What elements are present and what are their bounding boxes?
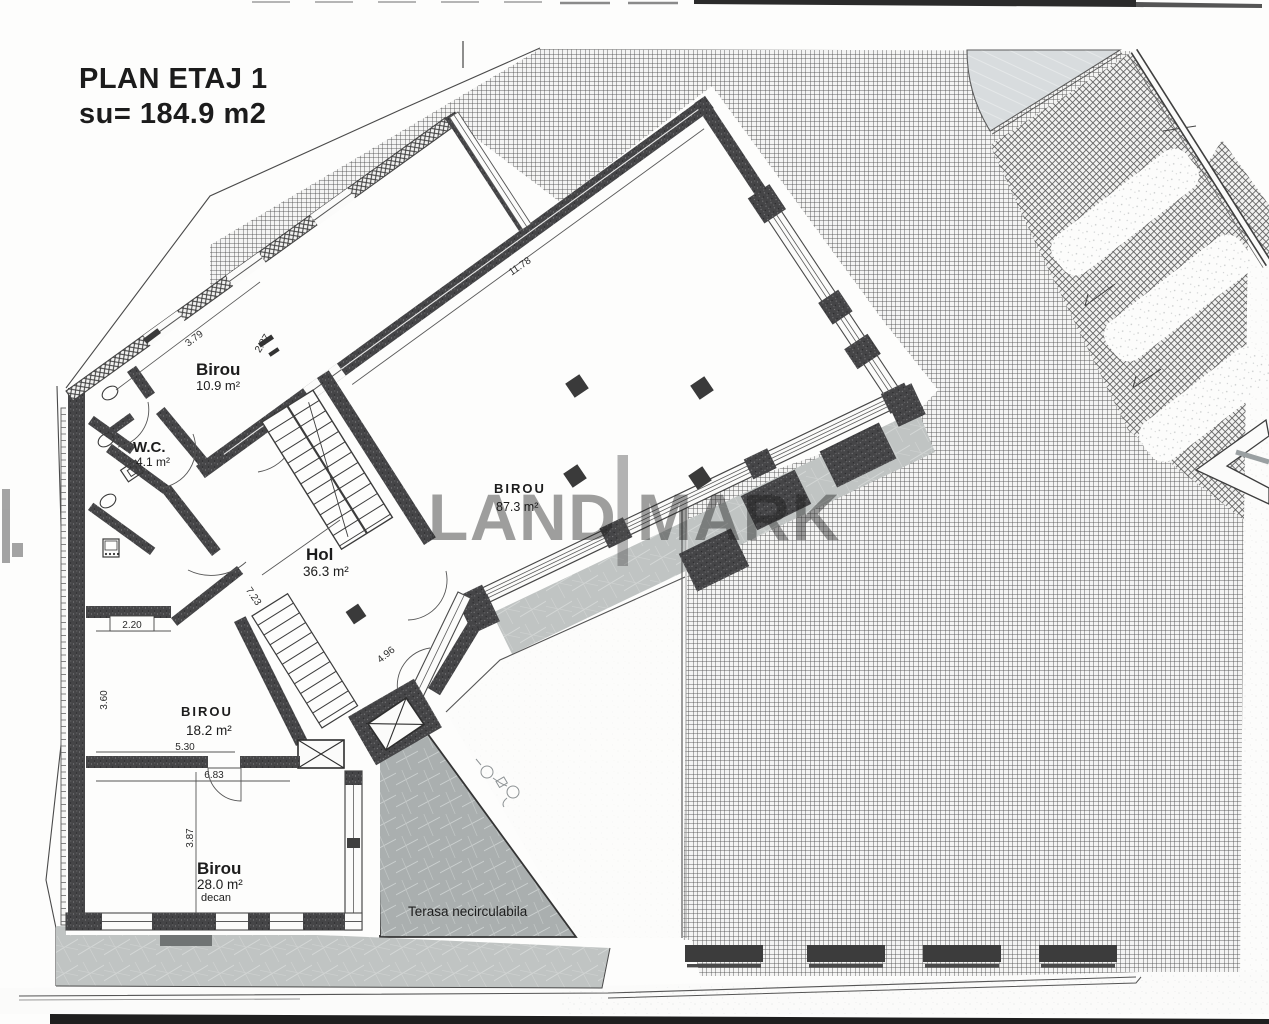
svg-text:18.2 m²: 18.2 m² [186,723,232,738]
svg-text:6.83: 6.83 [204,770,224,781]
svg-text:Birou: Birou [197,859,241,878]
svg-text:W.C.: W.C. [133,439,166,456]
svg-text:3.60: 3.60 [99,690,110,710]
svg-text:decan: decan [201,892,231,904]
svg-text:MARK: MARK [637,480,841,554]
svg-text:4.1 m²: 4.1 m² [136,455,170,469]
svg-text:Birou: Birou [196,360,240,379]
svg-text:BIROU: BIROU [181,704,233,719]
svg-text:Terasa necirculabila: Terasa necirculabila [408,904,528,919]
svg-text:Hol: Hol [306,545,333,564]
svg-text:su= 184.9 m2: su= 184.9 m2 [79,98,266,130]
svg-text:2.20: 2.20 [122,620,142,631]
svg-text:10.9 m²: 10.9 m² [196,378,241,393]
svg-text:28.0 m²: 28.0 m² [197,877,243,892]
svg-text:3.87: 3.87 [185,828,196,848]
svg-text:LAND: LAND [428,480,617,554]
svg-text:PLAN ETAJ 1: PLAN ETAJ 1 [79,63,268,95]
svg-text:5.30: 5.30 [175,742,195,753]
svg-text:36.3 m²: 36.3 m² [303,564,349,579]
